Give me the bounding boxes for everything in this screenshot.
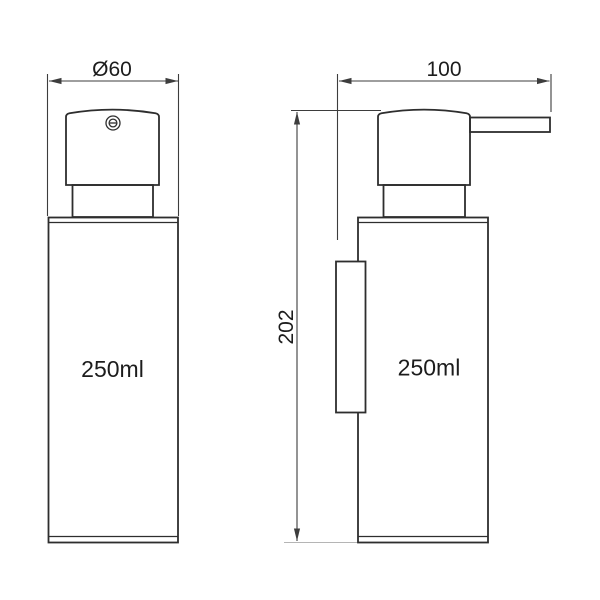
pump-cap-icon [106,116,120,130]
side-view: 100 202 250ml [275,58,551,543]
front-view: Ø60 250ml [48,58,179,543]
front-pump-head [66,110,159,185]
dispenser-drawing-svg: Ø60 250ml 100 [0,0,600,600]
technical-drawing-page: Ø60 250ml 100 [0,0,600,600]
front-diameter-label: Ø60 [92,58,132,81]
wall-mount-bracket [336,262,366,413]
side-pump-spout [470,118,550,133]
side-height-label: 202 [275,309,298,344]
side-width-label: 100 [426,58,461,81]
side-capacity-label: 250ml [398,355,461,381]
front-capacity-label: 250ml [81,356,144,382]
front-pump-neck [73,185,154,217]
side-pump-neck [384,185,466,217]
side-pump-head [378,110,470,185]
